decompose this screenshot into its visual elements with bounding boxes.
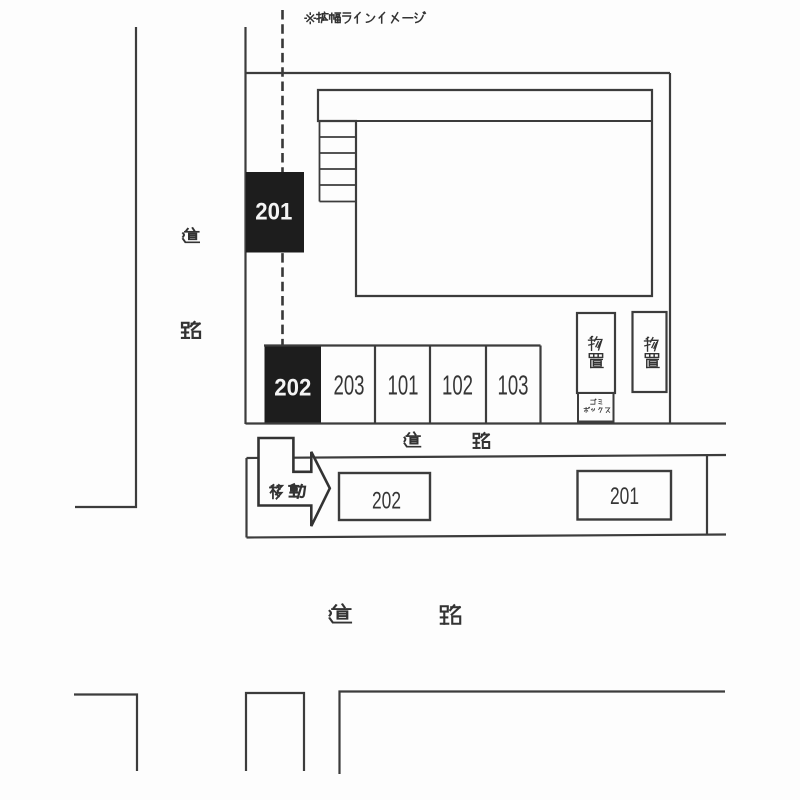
svg-text:203: 203 xyxy=(334,370,365,401)
svg-text:201: 201 xyxy=(610,483,639,510)
svg-text:202: 202 xyxy=(274,375,311,402)
svg-text:202: 202 xyxy=(372,488,401,515)
svg-text:102: 102 xyxy=(442,370,473,401)
svg-text:103: 103 xyxy=(498,370,529,401)
svg-text:101: 101 xyxy=(388,370,419,401)
svg-text:201: 201 xyxy=(255,199,292,226)
